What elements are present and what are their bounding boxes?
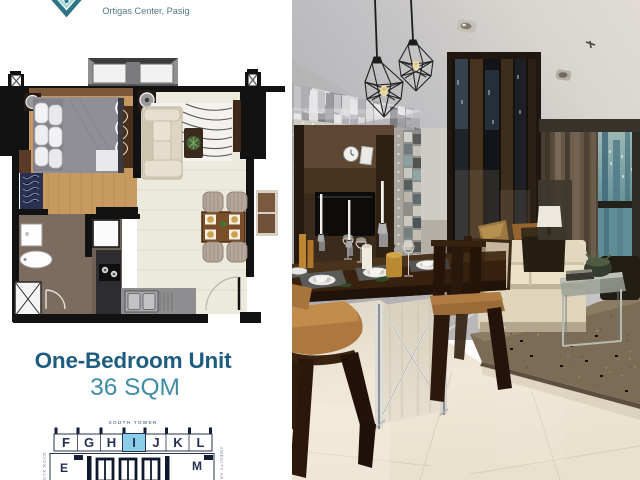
svg-text:F: F: [62, 435, 70, 450]
svg-text:K: K: [173, 435, 183, 450]
svg-text:J: J: [152, 435, 159, 450]
svg-text:H: H: [107, 435, 116, 450]
svg-text:AMENITY AREA: AMENITY AREA: [219, 447, 224, 480]
svg-text:One-Bedroom Unit: One-Bedroom Unit: [35, 348, 233, 373]
svg-text:E: E: [60, 461, 68, 475]
svg-text:G: G: [84, 435, 94, 450]
svg-text:L: L: [197, 435, 205, 450]
svg-text:M: M: [192, 459, 202, 473]
svg-text:SOUTH TOWER: SOUTH TOWER: [108, 420, 157, 426]
svg-text:Ortigas Center, Pasig: Ortigas Center, Pasig: [102, 6, 189, 16]
svg-text:I: I: [132, 435, 136, 450]
svg-text:36 SQM: 36 SQM: [90, 374, 180, 401]
svg-text:ONYX ROAD: ONYX ROAD: [42, 452, 47, 480]
